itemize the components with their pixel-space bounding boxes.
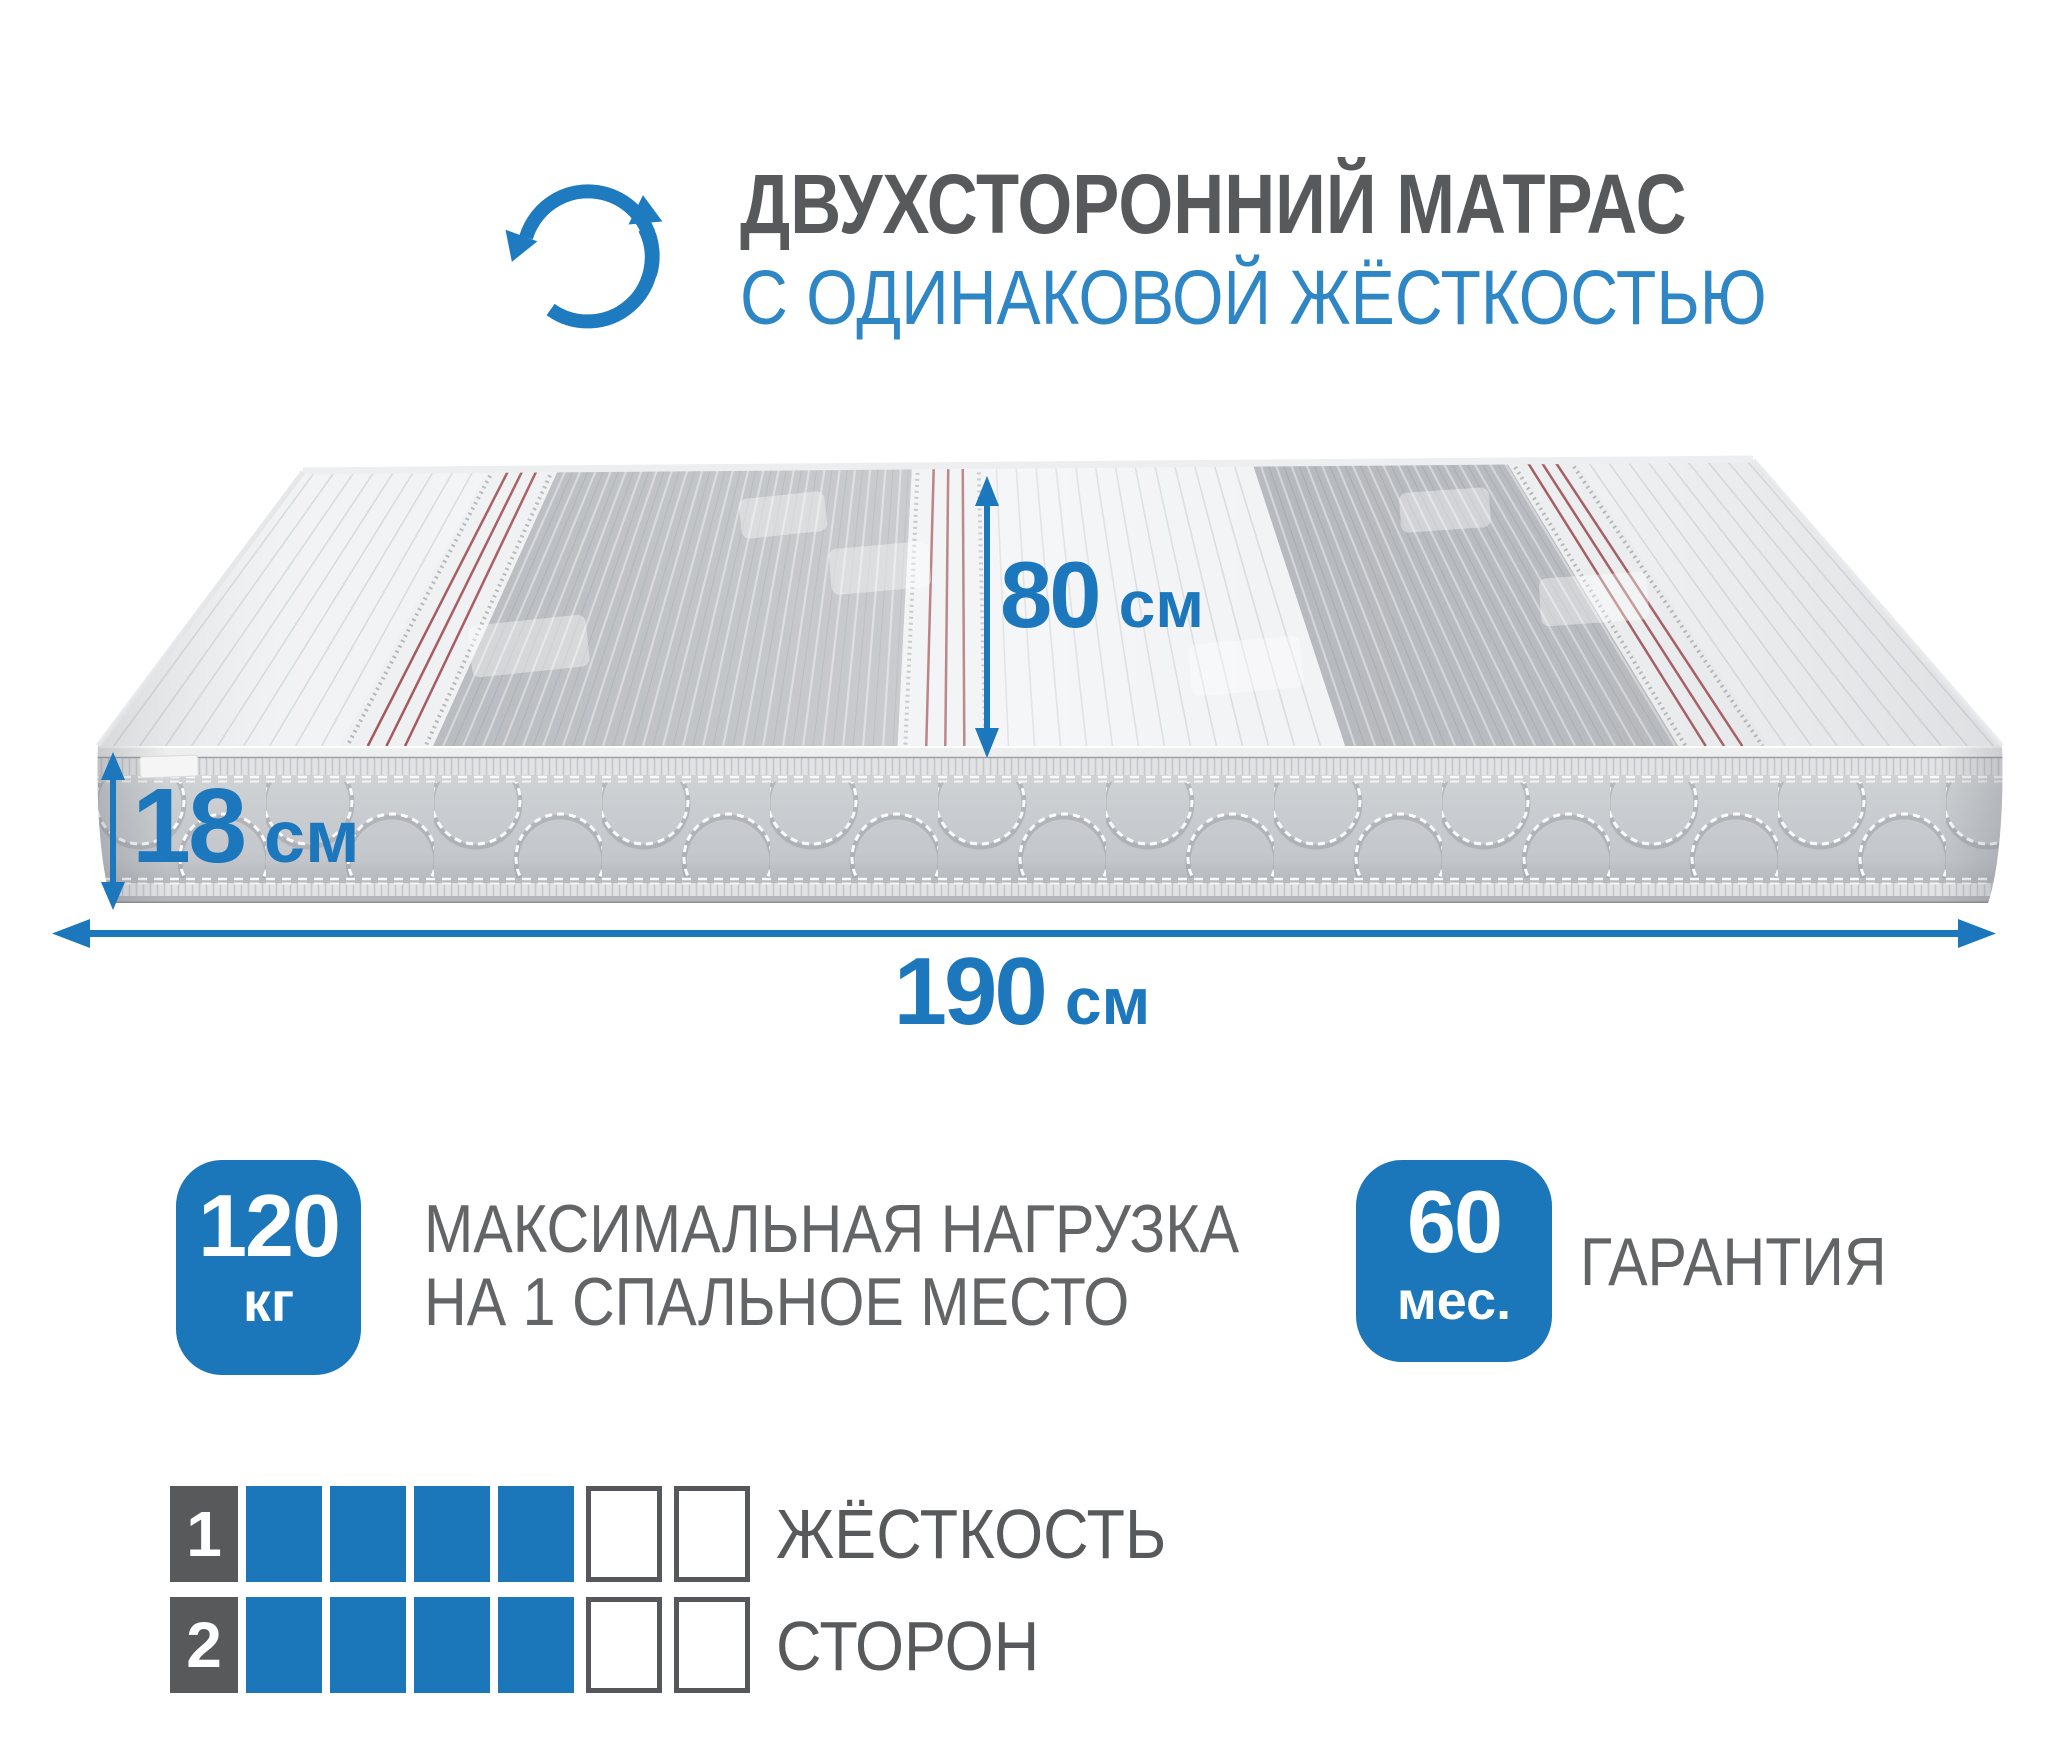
firmness-square-filled bbox=[498, 1597, 574, 1693]
firmness-side-number: 2 bbox=[170, 1597, 238, 1693]
firmness-square-filled bbox=[330, 1486, 406, 1582]
firmness-row: 1 bbox=[170, 1486, 750, 1582]
warranty-caption: ГАРАНТИЯ bbox=[1580, 1226, 1932, 1299]
max-load-badge: 120 кг bbox=[176, 1160, 361, 1375]
firmness-square-filled bbox=[498, 1486, 574, 1582]
page-subtitle: С ОДИНАКОВОЙ ЖЁСТКОСТЬЮ bbox=[740, 260, 1767, 337]
depth-dimension-label: 80 см bbox=[1000, 548, 1204, 642]
max-load-caption-line2: НА 1 СПАЛЬНОЕ МЕСТО bbox=[424, 1266, 1239, 1339]
firmness-caption-line1: ЖЁСТКОСТЬ bbox=[776, 1499, 1210, 1569]
mattress-infographic: ДВУХСТОРОННИЙ МАТРАС С ОДИНАКОВОЙ ЖЁСТКО… bbox=[0, 0, 2048, 1757]
max-load-caption: МАКСИМАЛЬНАЯ НАГРУЗКА НА 1 СПАЛЬНОЕ МЕСТ… bbox=[424, 1193, 1361, 1339]
firmness-square-filled bbox=[330, 1597, 406, 1693]
header: ДВУХСТОРОННИЙ МАТРАС С ОДИНАКОВОЙ ЖЁСТКО… bbox=[740, 162, 1934, 337]
length-value: 190 bbox=[894, 944, 1045, 1040]
firmness-side-number: 1 bbox=[170, 1486, 238, 1582]
firmness-square-filled bbox=[414, 1486, 490, 1582]
warranty-unit: мес. bbox=[1356, 1274, 1552, 1328]
page-title: ДВУХСТОРОННИЙ МАТРАС bbox=[740, 162, 1743, 246]
depth-value: 80 bbox=[1000, 548, 1099, 642]
height-unit: см bbox=[264, 800, 360, 874]
firmness-square-empty bbox=[674, 1597, 750, 1693]
firmness-square-filled bbox=[246, 1597, 322, 1693]
firmness-caption-line2: СТОРОН bbox=[776, 1611, 1068, 1681]
height-value: 18 bbox=[132, 773, 244, 879]
firmness-square-empty bbox=[674, 1486, 750, 1582]
warranty-badge: 60 мес. bbox=[1356, 1160, 1552, 1362]
firmness-square-filled bbox=[414, 1597, 490, 1693]
height-dimension-label: 18 см bbox=[132, 773, 360, 879]
firmness-square-filled bbox=[246, 1486, 322, 1582]
firmness-square-empty bbox=[586, 1486, 662, 1582]
firmness-square-empty bbox=[586, 1597, 662, 1693]
length-dimension-label: 190 см bbox=[894, 944, 1151, 1040]
max-load-caption-line1: МАКСИМАЛЬНАЯ НАГРУЗКА bbox=[424, 1193, 1239, 1266]
mattress-side bbox=[90, 744, 2015, 906]
max-load-unit: кг bbox=[176, 1274, 361, 1330]
warranty-caption-text: ГАРАНТИЯ bbox=[1580, 1226, 1887, 1299]
firmness-row: 2 bbox=[170, 1597, 750, 1693]
length-unit: см bbox=[1065, 968, 1151, 1034]
rotate-icon bbox=[498, 172, 678, 344]
max-load-value: 120 bbox=[176, 1182, 361, 1270]
warranty-value: 60 bbox=[1356, 1178, 1552, 1266]
depth-unit: см bbox=[1119, 571, 1205, 637]
